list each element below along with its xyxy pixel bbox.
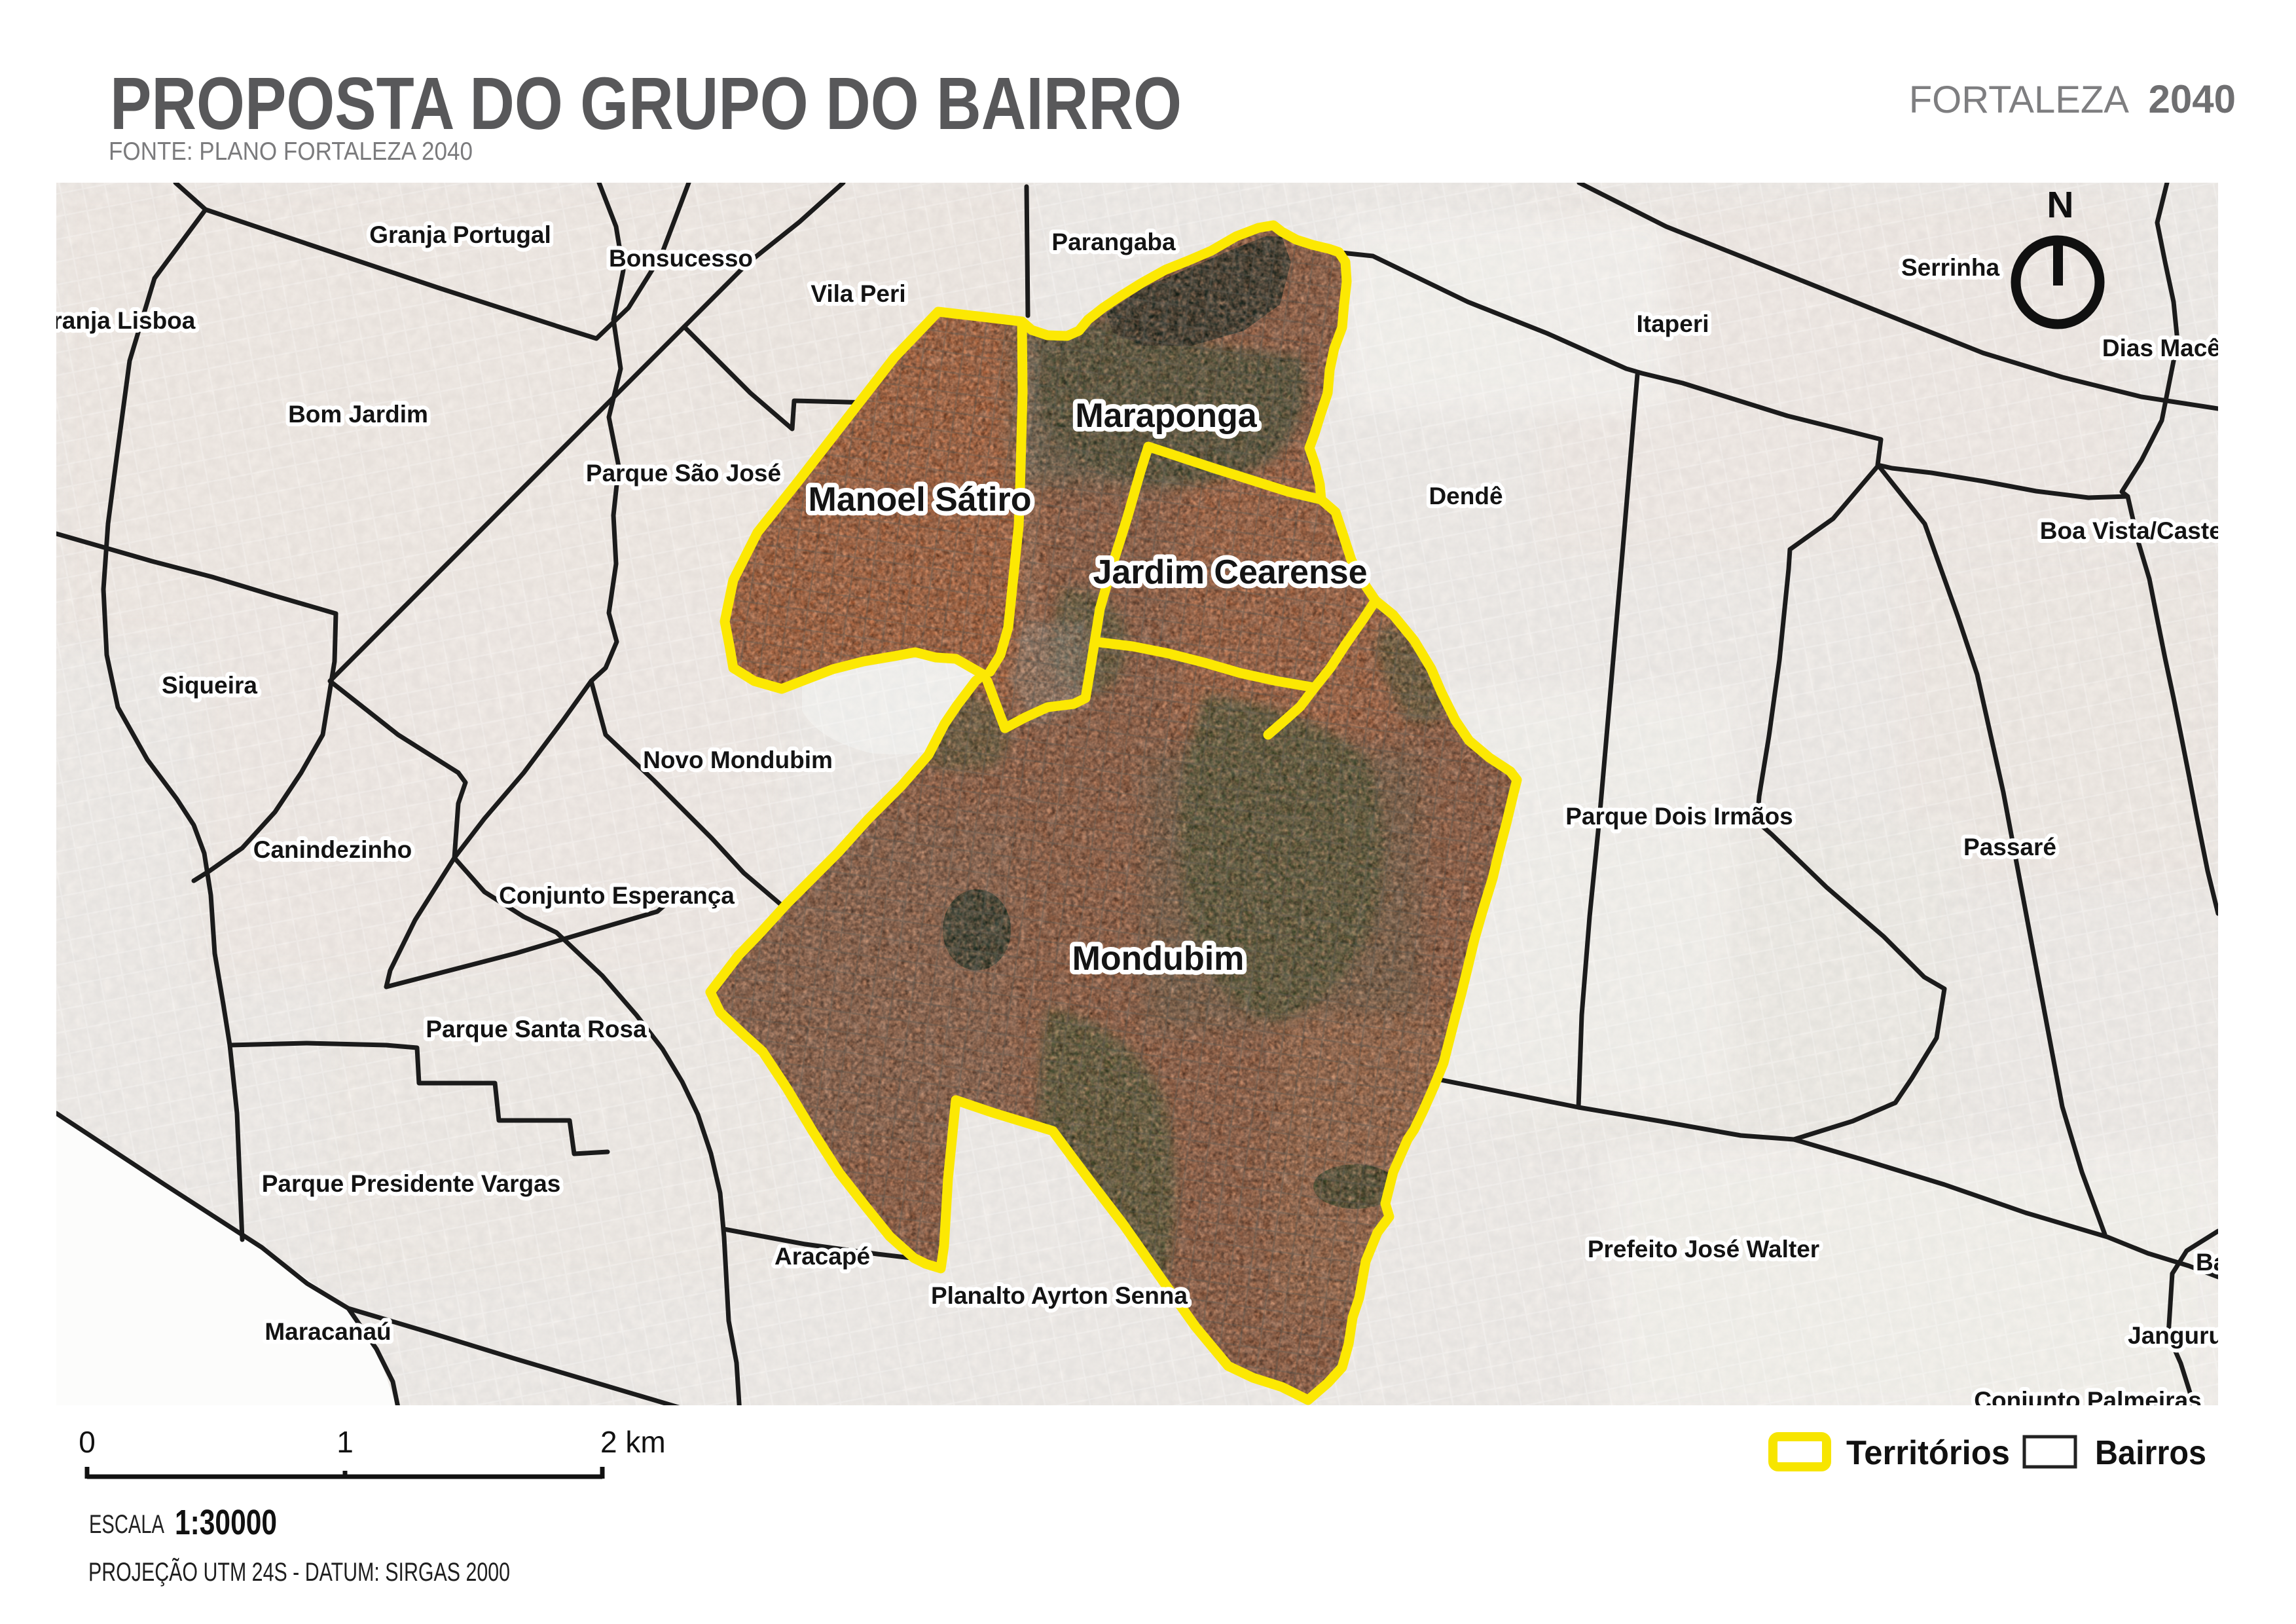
svg-text:Maraponga: Maraponga — [1075, 397, 1257, 435]
svg-text:Itaperi: Itaperi — [1636, 310, 1709, 337]
svg-text:Maracanaú: Maracanaú — [264, 1318, 391, 1345]
svg-text:PROPOSTA DO GRUPO DO BAIRRO: PROPOSTA DO GRUPO DO BAIRRO — [110, 62, 1182, 145]
svg-text:Parque Santa Rosa: Parque Santa Rosa — [426, 1016, 647, 1043]
svg-text:Parque Dois Irmãos: Parque Dois Irmãos — [1565, 803, 1793, 830]
svg-text:Parque São José: Parque São José — [586, 460, 781, 487]
svg-text:Vila Peri: Vila Peri — [811, 280, 905, 307]
svg-text:Conjunto Esperança: Conjunto Esperança — [499, 882, 735, 909]
svg-text:0: 0 — [79, 1425, 96, 1459]
svg-text:Passaré: Passaré — [1963, 834, 2056, 860]
svg-text:Parque Presidente Vargas: Parque Presidente Vargas — [262, 1170, 561, 1197]
svg-text:ESCALA: ESCALA — [89, 1510, 164, 1539]
svg-text:FONTE: PLANO FORTALEZA 2040: FONTE: PLANO FORTALEZA 2040 — [109, 138, 473, 166]
svg-text:Aracapé: Aracapé — [774, 1243, 870, 1270]
svg-text:Prefeito José Walter: Prefeito José Walter — [1588, 1236, 1819, 1263]
svg-text:Manoel Sátiro: Manoel Sátiro — [809, 481, 1032, 519]
svg-text:1: 1 — [337, 1425, 354, 1459]
svg-text:FORTALEZA: FORTALEZA — [1909, 79, 2130, 121]
svg-text:Jardim Cearense: Jardim Cearense — [1093, 553, 1367, 591]
svg-text:Mondubim: Mondubim — [1072, 940, 1245, 978]
svg-text:2040: 2040 — [2149, 77, 2236, 121]
svg-text:Parangaba: Parangaba — [1051, 229, 1176, 255]
svg-text:Novo Mondubim: Novo Mondubim — [643, 747, 833, 773]
svg-text:Territórios: Territórios — [1846, 1434, 2010, 1472]
svg-text:Granja Portugal: Granja Portugal — [369, 221, 551, 248]
svg-text:Dendê: Dendê — [1429, 483, 1503, 509]
svg-text:Bonsucesso: Bonsucesso — [609, 245, 753, 272]
svg-text:1:30000: 1:30000 — [175, 1503, 277, 1542]
svg-text:Canindezinho: Canindezinho — [253, 836, 412, 863]
svg-text:Granja Lisboa: Granja Lisboa — [34, 307, 196, 334]
svg-text:Serrinha: Serrinha — [1901, 254, 2000, 281]
svg-text:Bom Jardim: Bom Jardim — [288, 401, 428, 428]
svg-text:PROJEÇÃO UTM 24S - DATUM: SIRG: PROJEÇÃO UTM 24S - DATUM: SIRGAS 2000 — [88, 1557, 510, 1587]
svg-text:Siqueira: Siqueira — [162, 672, 257, 699]
svg-text:Planalto Ayrton Senna: Planalto Ayrton Senna — [931, 1282, 1188, 1309]
svg-text:2 km: 2 km — [600, 1425, 666, 1459]
svg-text:Bairros: Bairros — [2095, 1434, 2206, 1472]
svg-text:N: N — [2047, 184, 2073, 226]
